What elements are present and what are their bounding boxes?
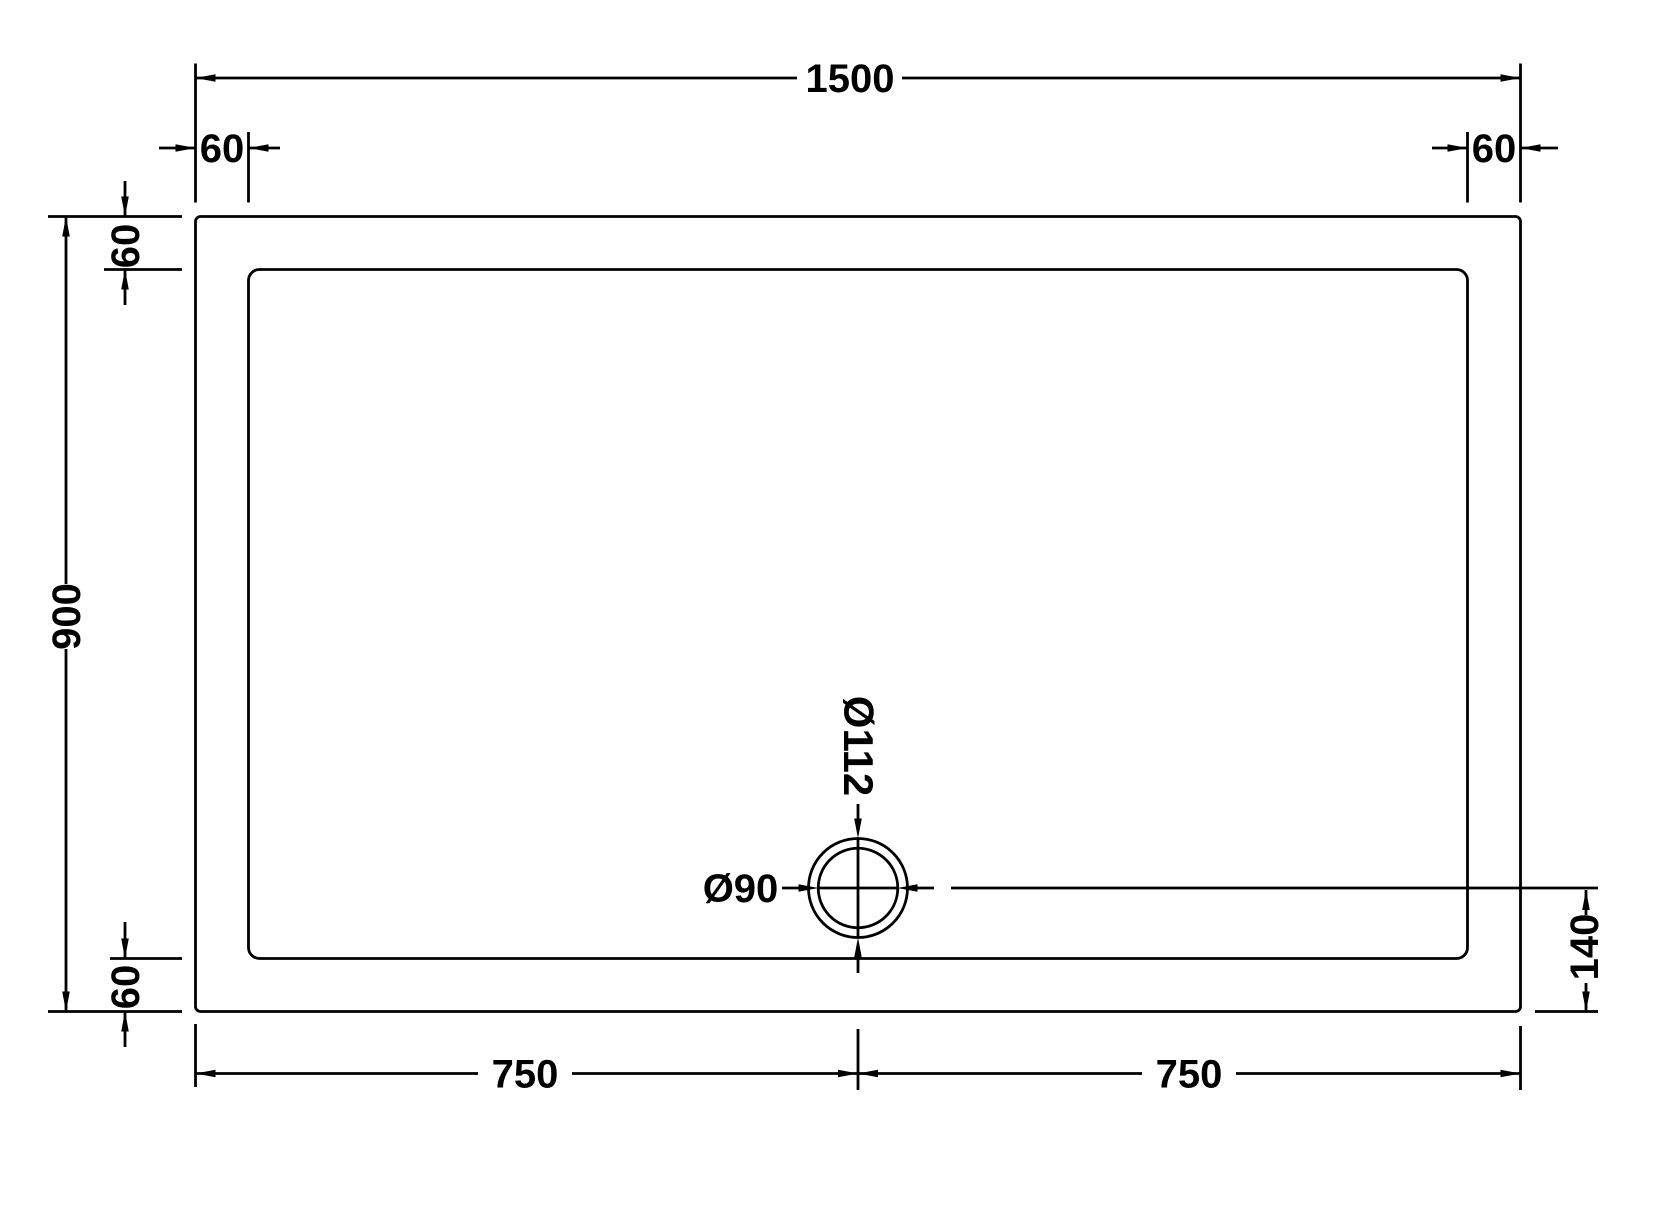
svg-text:1500: 1500: [806, 57, 895, 101]
svg-text:60: 60: [104, 224, 148, 269]
svg-text:750: 750: [1156, 1053, 1223, 1097]
svg-text:750: 750: [492, 1053, 559, 1097]
svg-text:60: 60: [1472, 127, 1517, 171]
svg-text:Ø112: Ø112: [835, 696, 882, 796]
svg-text:900: 900: [45, 583, 89, 650]
svg-text:140: 140: [1563, 914, 1607, 981]
svg-text:60: 60: [200, 127, 245, 171]
svg-text:Ø90: Ø90: [703, 867, 779, 911]
svg-text:60: 60: [104, 965, 148, 1010]
